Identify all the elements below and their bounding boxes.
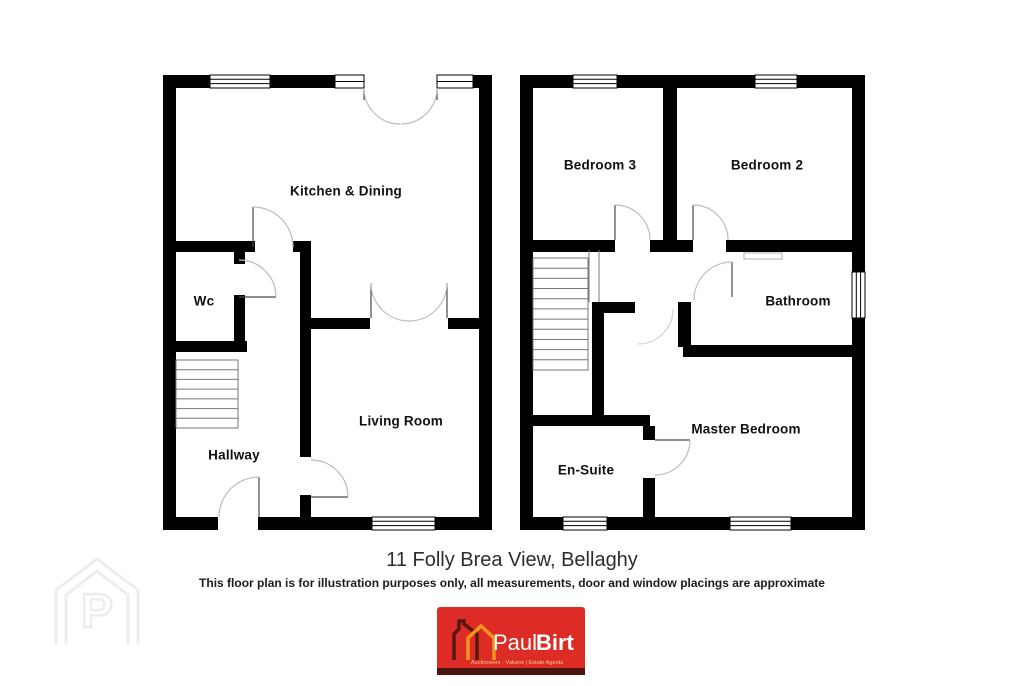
logo-brand-first: Paul: [493, 630, 537, 655]
room-label-bathroom: Bathroom: [765, 294, 830, 309]
agent-logo: Paul Birt Auctioneers · Valuers | Estate…: [437, 607, 585, 675]
logo-tagline: Auctioneers · Valuers | Estate Agents: [471, 660, 563, 666]
room-label-hallway: Hallway: [208, 448, 260, 463]
room-label-ensuite: En-Suite: [558, 463, 614, 478]
room-label-kitchen-dining: Kitchen & Dining: [290, 184, 402, 199]
room-label-master-bedroom: Master Bedroom: [691, 422, 800, 437]
agent-logo-drawing: Paul Birt Auctioneers · Valuers | Estate…: [437, 607, 585, 675]
logo-footer-strip: [437, 668, 585, 675]
room-label-living-room: Living Room: [359, 414, 443, 429]
ground-floor-stairs-icon: [176, 360, 238, 428]
property-address-title: 11 Folly Brea View, Bellaghy: [0, 549, 1024, 572]
first-floor-stairs-icon: [533, 250, 599, 370]
watermark-letter: P: [81, 585, 113, 638]
room-label-wc: Wc: [194, 294, 215, 309]
logo-brand-second: Birt: [536, 630, 575, 655]
floor-plan-page: P: [0, 0, 1024, 686]
room-label-bedroom3: Bedroom 3: [564, 158, 636, 173]
disclaimer-text: This floor plan is for illustration purp…: [0, 576, 1024, 590]
room-label-bedroom2: Bedroom 2: [731, 158, 803, 173]
